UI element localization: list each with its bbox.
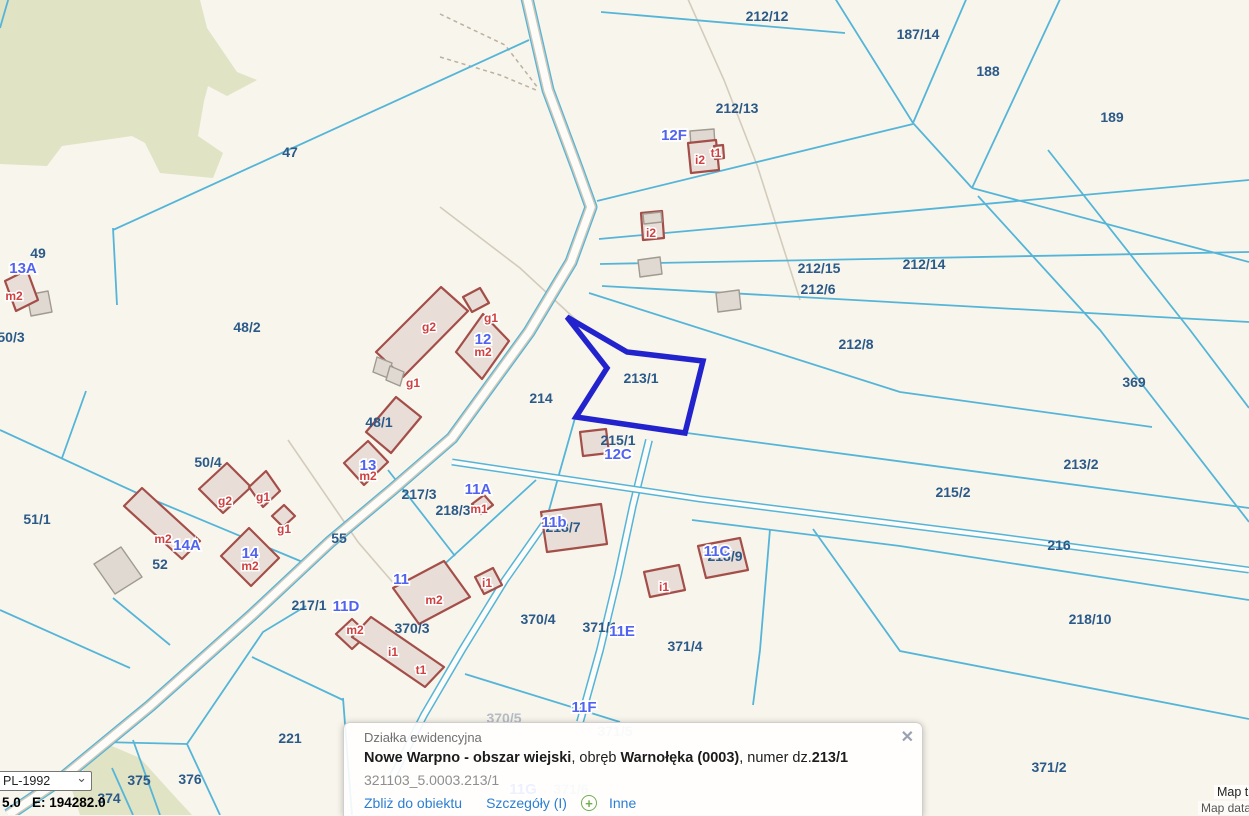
address-point-label: 11b (541, 514, 566, 531)
close-icon[interactable]: ✕ (901, 727, 914, 747)
parcel-number-label: 216 (1047, 537, 1071, 553)
address-point-label: 13A (9, 260, 37, 277)
address-point-label: 11F (571, 699, 596, 716)
parcel-number-label: 370/3 (394, 620, 429, 636)
parcel-number-label: 188 (976, 63, 1000, 79)
parcel-number-label: 55 (331, 530, 347, 546)
crs-select[interactable]: PL-1992 ⌄ (0, 771, 92, 791)
parcel-number-label: 212/6 (800, 281, 835, 297)
chevron-down-icon: ⌄ (76, 773, 87, 783)
parcel-number-label: 51/1 (23, 511, 50, 527)
parcel-number-label: 48/1 (365, 414, 392, 430)
popup-title: Działka ewidencyjna (364, 730, 904, 745)
parcel-number-label: 189 (1100, 109, 1124, 125)
address-point-label: 11D (333, 598, 360, 615)
parcel-number-label: 371/2 (1031, 759, 1066, 775)
parcel-identifier: 321103_5.0003.213/1 (364, 772, 904, 788)
parcel-number-label: 212/8 (838, 336, 873, 352)
parcel-number-label: 213/2 (1063, 456, 1098, 472)
parcel-number-label: 212/15 (798, 260, 841, 276)
parcel-number-label: 215/2 (935, 484, 970, 500)
building-function-label: t1 (711, 146, 722, 160)
parcel-number-label: 49 (30, 245, 46, 261)
building-function-label: g1 (256, 490, 270, 504)
building-function-label: i1 (482, 576, 492, 590)
obreb-name: Warnołęka (0003) (621, 750, 740, 766)
parcel-number-label: 48/2 (233, 319, 260, 335)
building-function-label: g2 (218, 494, 232, 508)
parcel-number-label: 218/10 (1069, 611, 1112, 627)
building-function-label: g1 (484, 311, 498, 325)
parcel-number-label: 50/4 (194, 454, 221, 470)
building-function-label: i2 (646, 226, 656, 240)
cadastral-map[interactable]: 212/12187/14188189212/13474950/348/2212/… (0, 0, 1249, 815)
building-function-label: t1 (416, 663, 427, 677)
other-link[interactable]: Inne (609, 795, 636, 811)
parcel-number-label: 376 (178, 771, 202, 787)
building-function-label: m2 (241, 559, 259, 573)
building-function-label: m2 (346, 623, 364, 637)
parcel-number-label: 212/13 (716, 100, 759, 116)
building-function-label: m1 (470, 502, 488, 516)
popup-actions: Zbliż do obiektu Szczegóły (I) + Inne (364, 795, 904, 811)
crs-select-value: PL-1992 (3, 774, 50, 788)
building-function-label: i1 (388, 645, 398, 659)
parcel-number-label: 213/1 (623, 370, 658, 386)
address-point-label: 11A (465, 481, 492, 498)
parcel-number-label: 47 (282, 144, 298, 160)
parcel-number-label: 217/3 (401, 486, 436, 502)
details-link[interactable]: Szczegóły (I) (486, 795, 567, 811)
map-attribution-data: Map data (1198, 801, 1249, 815)
parcel-number-label: 187/14 (897, 26, 940, 42)
building-function-label: m2 (359, 469, 377, 483)
address-point-label: 11 (393, 571, 409, 588)
parcel-description: Nowe Warpno - obszar wiejski, obręb Warn… (364, 750, 904, 766)
address-point-label: 11E (609, 623, 635, 640)
parcel-number-label: 370/4 (520, 611, 555, 627)
address-point-label: 12F (661, 127, 687, 144)
address-point-label: 12C (604, 446, 632, 463)
building-function-label: m2 (154, 532, 172, 546)
address-point-label: 14A (173, 537, 201, 554)
parcel-number-label: 52 (152, 556, 168, 572)
parcel-number: 213/1 (812, 750, 848, 766)
address-point-label: 11C (704, 543, 731, 560)
building-function-label: g1 (277, 522, 291, 536)
map-attribution-tiles: Map ti (1214, 785, 1249, 799)
parcel-number-label: 217/1 (291, 597, 326, 613)
feature-info-popup: ✕ Działka ewidencyjna Nowe Warpno - obsz… (343, 722, 923, 816)
parcel-number-label: 212/12 (746, 8, 789, 24)
plus-icon[interactable]: + (581, 795, 597, 811)
parcel-number-label: 221 (278, 730, 302, 746)
parcel-number-prefix: , numer dz. (739, 750, 812, 766)
parcel-number-label: 369 (1122, 374, 1146, 390)
zoom-to-object-link[interactable]: Zbliż do obiektu (364, 795, 462, 811)
building-function-label: g2 (422, 320, 436, 334)
obreb-prefix: , obręb (571, 750, 620, 766)
parcel-number-label: 50/3 (0, 329, 25, 345)
building-function-label: m2 (5, 289, 23, 303)
building-function-label: i1 (659, 580, 669, 594)
building-function-label: i2 (695, 153, 705, 167)
municipality-name: Nowe Warpno - obszar wiejski (364, 750, 571, 766)
building-function-label: g1 (406, 376, 420, 390)
parcel-number-label: 375 (127, 772, 151, 788)
parcel-number-label: 212/14 (903, 256, 946, 272)
cursor-coordinates: 5.0 E: 194282.0 (2, 795, 106, 810)
parcel-number-label: 218/3 (435, 502, 470, 518)
building-function-label: m2 (425, 593, 443, 607)
building-function-label: m2 (474, 345, 492, 359)
parcel-number-label: 371/4 (667, 638, 702, 654)
parcel-number-label: 214 (529, 390, 553, 406)
